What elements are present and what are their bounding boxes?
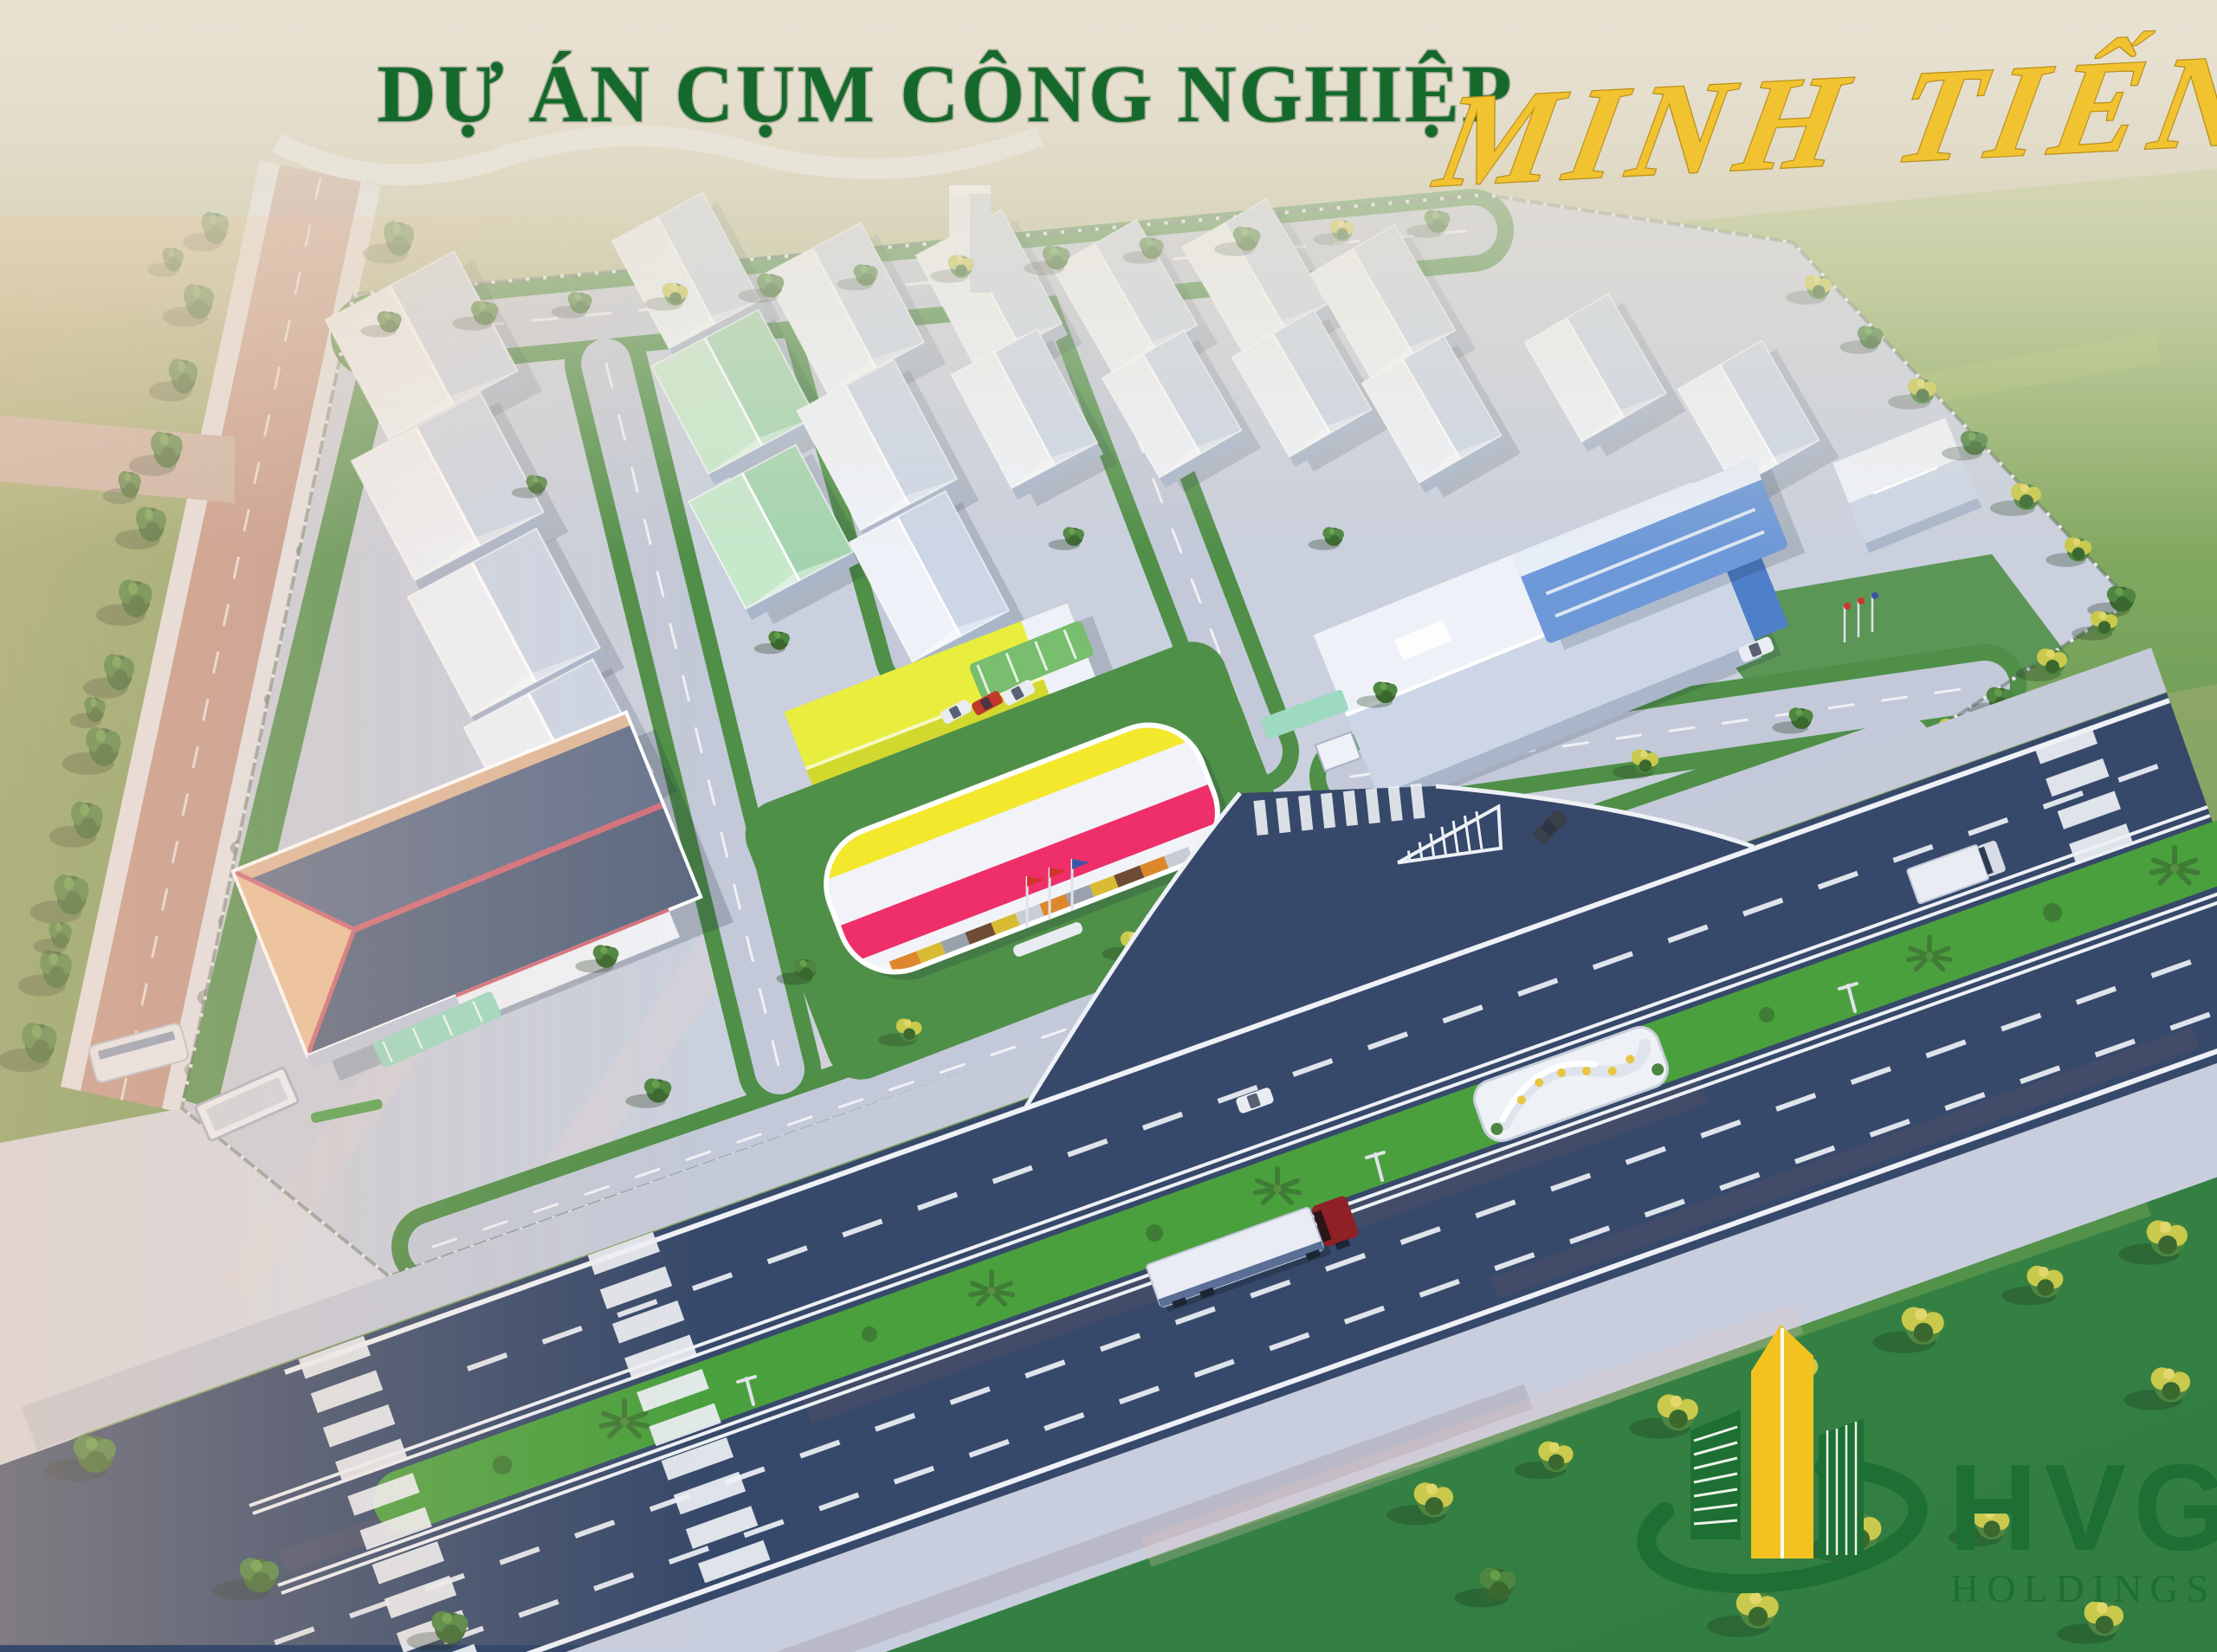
page-title: DỰ ÁN CỤM CÔNG NGHIỆP — [378, 49, 1515, 139]
warm-glow-overlay — [0, 216, 710, 1645]
aerial-render: DỰ ÁN CỤM CÔNG NGHIỆP MINH TIẾN — [0, 0, 2217, 1652]
logo-name: HVG — [1949, 1439, 2217, 1577]
logo-subtitle: HOLDINGS — [1950, 1566, 2216, 1610]
logo-building-right — [1819, 1418, 1864, 1558]
logo-building-left — [1690, 1410, 1741, 1539]
logo-tower-yellow — [1751, 1325, 1813, 1558]
